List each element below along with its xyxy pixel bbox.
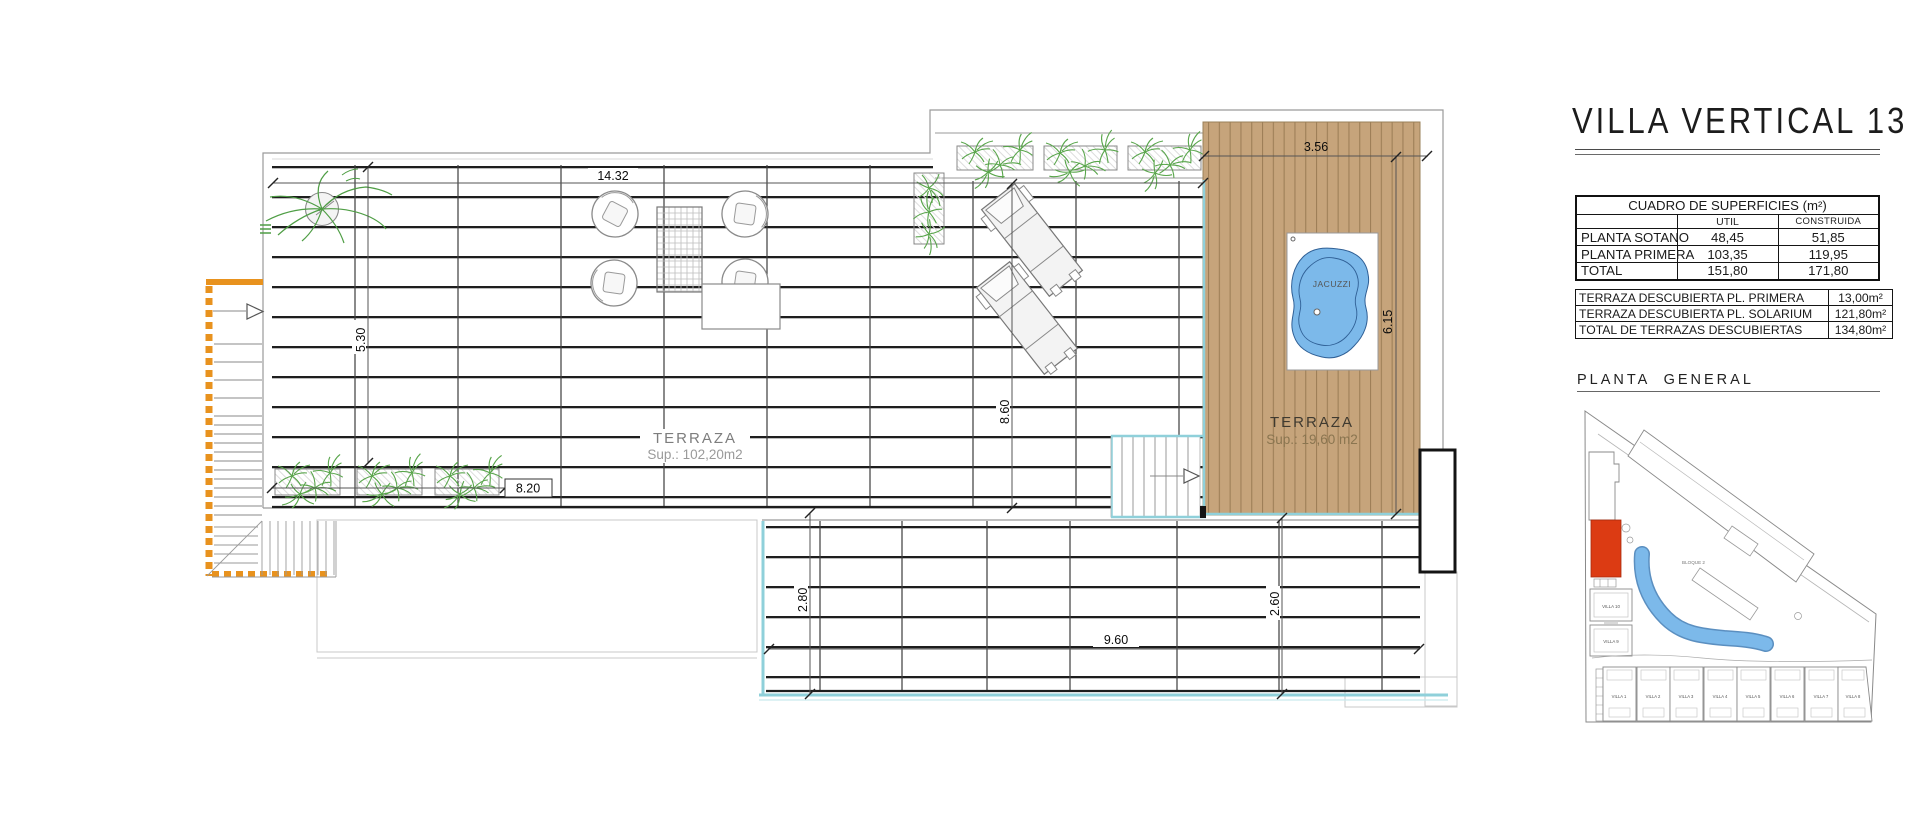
- terraces-row-value: 13,00m²: [1829, 290, 1893, 306]
- sheet-title: VILLA VERTICAL 13: [1572, 100, 1882, 142]
- villa-row-label: VILLA 8: [1846, 694, 1861, 699]
- site-map: VILLA 10 VILLA 9 BLOQUE 2: [1585, 411, 1876, 722]
- dim-upper-left-height: 5.30: [354, 328, 368, 352]
- dim-deck-width: 3.56: [1304, 140, 1328, 154]
- surfaces-row-util: 48,45: [1677, 229, 1778, 246]
- roof-opening: [702, 284, 780, 329]
- villa-row-label: VILLA 7: [1814, 694, 1829, 699]
- surfaces-row-construida: 119,95: [1778, 246, 1879, 263]
- pergola-grid-lower: [766, 520, 1420, 695]
- villa-9-label: VILLA 9: [1603, 639, 1619, 644]
- wall-segment: [1420, 450, 1455, 572]
- terraces-row-label: TERRAZA DESCUBIERTA PL. SOLARIUM: [1576, 306, 1829, 322]
- solarium-terrace-label: TERRAZA: [1270, 414, 1354, 431]
- villa-row-label: VILLA 4: [1713, 694, 1728, 699]
- solarium-terrace-area: Sup.: 19,60 m2: [1266, 432, 1358, 447]
- dim-top-width: 14.32: [597, 169, 628, 183]
- dim-mid-height: 8.60: [998, 400, 1012, 424]
- surfaces-col-empty: [1576, 215, 1677, 229]
- planter-vertical: [910, 173, 949, 257]
- planta-general-underline: [1577, 391, 1880, 392]
- surfaces-row-label: TOTAL: [1576, 263, 1677, 280]
- main-terrace-area: Sup.: 102,20m2: [647, 447, 742, 462]
- jacuzzi-label: JACUZZI: [1313, 279, 1351, 289]
- surfaces-row: PLANTA PRIMERA 103,35 119,95: [1576, 246, 1879, 263]
- stairs-right: [1111, 436, 1206, 518]
- planta-general-heading: PLANTA GENERAL: [1577, 372, 1754, 388]
- surfaces-col-util: UTIL: [1677, 215, 1778, 229]
- surfaces-row-construida: 171,80: [1778, 263, 1879, 280]
- surfaces-row: PLANTA SOTANO 48,45 51,85: [1576, 229, 1879, 246]
- villa-9-box: VILLA 9: [1590, 625, 1632, 656]
- villa-row-label: VILLA 5: [1746, 694, 1761, 699]
- dim-lower-width: 9.60: [1104, 633, 1128, 647]
- villa-row-label: VILLA 2: [1646, 694, 1661, 699]
- direction-arrow-icon: [247, 304, 263, 319]
- terraces-table: TERRAZA DESCUBIERTA PL. PRIMERA 13,00m² …: [1575, 289, 1893, 339]
- villa-row-label: VILLA 6: [1780, 694, 1795, 699]
- surfaces-table: CUADRO DE SUPERFICIES (m²) UTIL CONSTRUI…: [1575, 195, 1880, 281]
- villa-row-label: VILLA 1: [1612, 694, 1627, 699]
- villa-10-label: VILLA 10: [1602, 604, 1620, 609]
- title-underline: [1575, 149, 1880, 155]
- surfaces-col-construida: CONSTRUIDA: [1778, 215, 1879, 229]
- villa-row-label: VILLA 3: [1679, 694, 1694, 699]
- surfaces-row-construida: 51,85: [1778, 229, 1879, 246]
- surfaces-row-label: PLANTA PRIMERA: [1576, 246, 1677, 263]
- surfaces-row-util: 151,80: [1677, 263, 1778, 280]
- terraces-row: TERRAZA DESCUBIERTA PL. SOLARIUM 121,80m…: [1576, 306, 1893, 322]
- terraces-row-label: TOTAL DE TERRAZAS DESCUBIERTAS: [1576, 322, 1829, 338]
- villa-row: VILLA 1 VILLA 2 VILLA 3 VILLA 4 VILLA 5 …: [1596, 667, 1872, 721]
- dim-lower-left-height: 2.80: [796, 588, 810, 612]
- bloque-2-label: BLOQUE 2: [1682, 560, 1705, 565]
- dim-deck-height: 6.15: [1381, 310, 1395, 334]
- surfaces-row-label: PLANTA SOTANO: [1576, 229, 1677, 246]
- highlighted-villa: [1591, 520, 1621, 577]
- terraces-row-value: 134,80m²: [1829, 322, 1893, 338]
- terraces-row: TOTAL DE TERRAZAS DESCUBIERTAS 134,80m²: [1576, 322, 1893, 338]
- drawing-sheet: JACUZZI: [0, 0, 1920, 820]
- villa-10-box: VILLA 10: [1590, 589, 1632, 621]
- surfaces-row: TOTAL 151,80 171,80: [1576, 263, 1879, 280]
- dim-planter-row-width: 8.20: [516, 482, 540, 496]
- jacuzzi: JACUZZI: [1287, 233, 1378, 370]
- terraces-row-label: TERRAZA DESCUBIERTA PL. PRIMERA: [1576, 290, 1829, 306]
- surfaces-table-title: CUADRO DE SUPERFICIES (m²): [1576, 196, 1879, 215]
- dim-lower-right-height: 2.60: [1268, 592, 1282, 616]
- main-terrace-label: TERRAZA: [653, 430, 737, 447]
- dining-table: [657, 207, 702, 292]
- terraces-row-value: 121,80m²: [1829, 306, 1893, 322]
- terraces-row: TERRAZA DESCUBIERTA PL. PRIMERA 13,00m²: [1576, 290, 1893, 306]
